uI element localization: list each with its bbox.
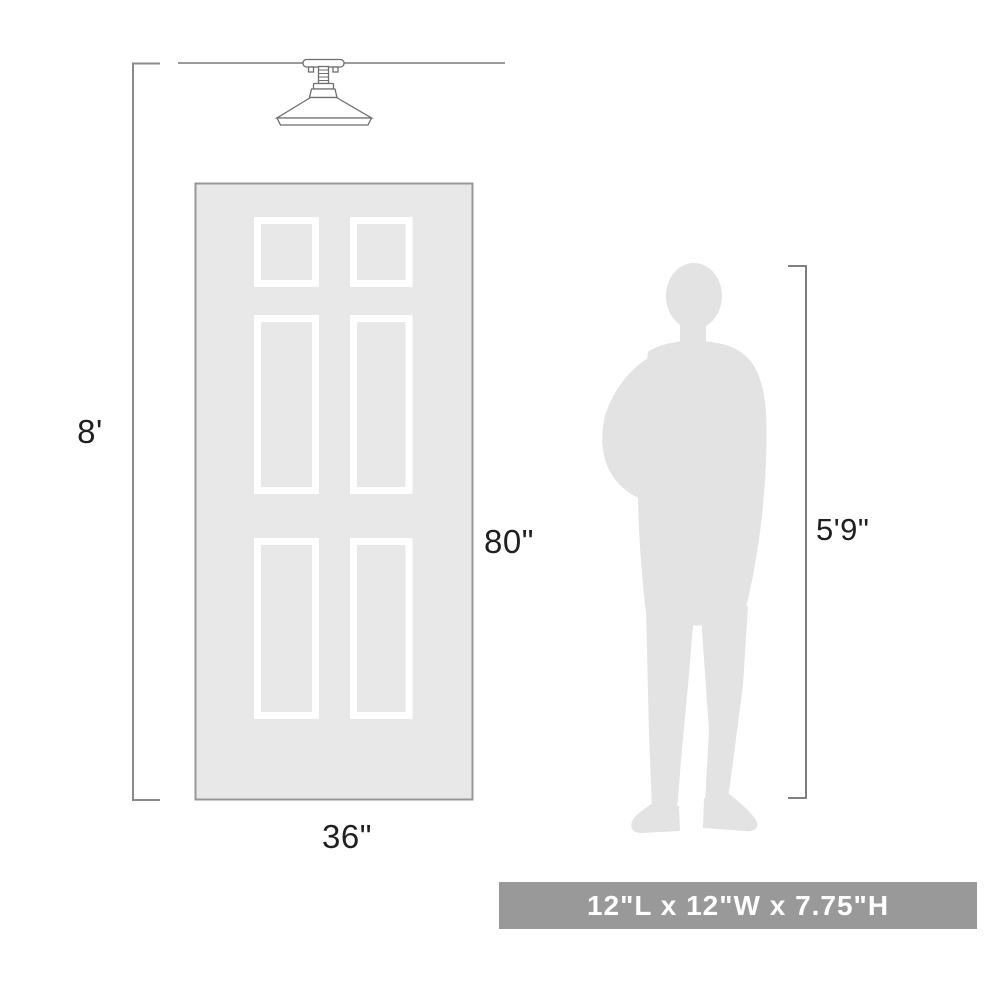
door-width-label: 36"	[302, 818, 392, 856]
product-dimensions-banner: 12"L x 12"W x 7.75"H	[499, 882, 977, 929]
six-panel-door-icon	[196, 184, 473, 800]
person-height-dimension-line	[788, 266, 806, 798]
ceiling-height-dimension-line	[133, 64, 160, 801]
diagram-artwork	[0, 0, 1000, 1000]
door-height-label: 80"	[484, 523, 534, 561]
size-guide-diagram: 8' 80" 36" 5'9" 12"L x 12"W x 7.75"H	[0, 0, 1000, 1000]
person-silhouette-icon	[602, 263, 766, 833]
product-dimensions-text: 12"L x 12"W x 7.75"H	[587, 890, 889, 922]
semi-flush-ceiling-light-icon	[277, 60, 372, 126]
person-height-label: 5'9"	[816, 512, 869, 548]
ceiling-height-label: 8'	[58, 413, 122, 451]
